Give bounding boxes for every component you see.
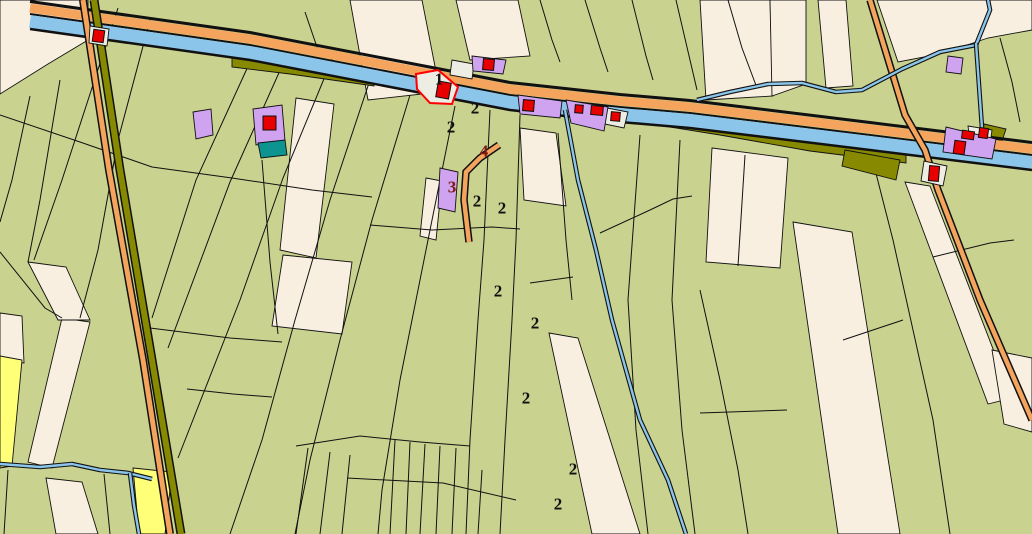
- building: [978, 127, 988, 138]
- building: [962, 130, 975, 140]
- map-canvas[interactable]: 122222222234: [0, 0, 1032, 534]
- building: [92, 29, 105, 42]
- building: [575, 105, 584, 114]
- parcel-label: 3: [448, 178, 457, 197]
- parcel-label: 2: [569, 460, 578, 479]
- building: [483, 59, 495, 71]
- parcel-label: 2: [531, 314, 540, 333]
- parcel-label: 2: [471, 99, 480, 118]
- parcel-teal: [258, 140, 287, 158]
- parcel-purple: [946, 56, 963, 74]
- building: [953, 140, 966, 154]
- parcel-label: 4: [480, 142, 489, 161]
- parcel-label: 1: [435, 70, 444, 89]
- parcel-purple: [193, 109, 213, 139]
- building: [591, 105, 604, 115]
- building: [928, 166, 939, 182]
- building: [263, 116, 276, 130]
- parcel-label: 2: [494, 282, 503, 301]
- parcel-label: 2: [498, 199, 507, 218]
- parcel-cream: [272, 255, 352, 334]
- parcel-cream: [706, 148, 788, 268]
- parcel-label: 2: [473, 192, 482, 211]
- building: [611, 112, 621, 122]
- map-viewport[interactable]: 122222222234: [0, 0, 1032, 534]
- parcel-cream: [0, 313, 24, 363]
- building: [523, 100, 535, 112]
- parcel-label: 2: [522, 389, 531, 408]
- parcel-label: 2: [554, 495, 563, 514]
- parcel-label: 2: [447, 118, 456, 137]
